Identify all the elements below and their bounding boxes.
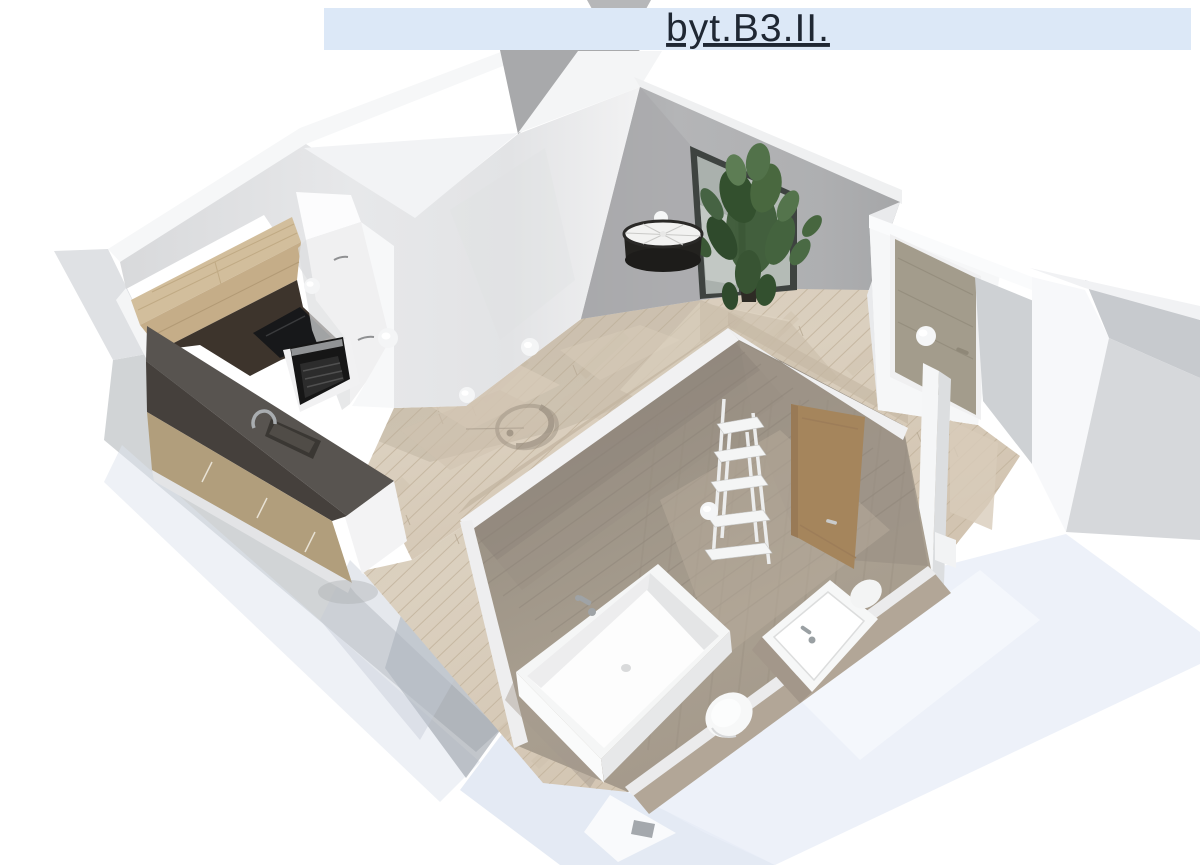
- svg-text:byt.B3.II.: byt.B3.II.: [666, 7, 830, 50]
